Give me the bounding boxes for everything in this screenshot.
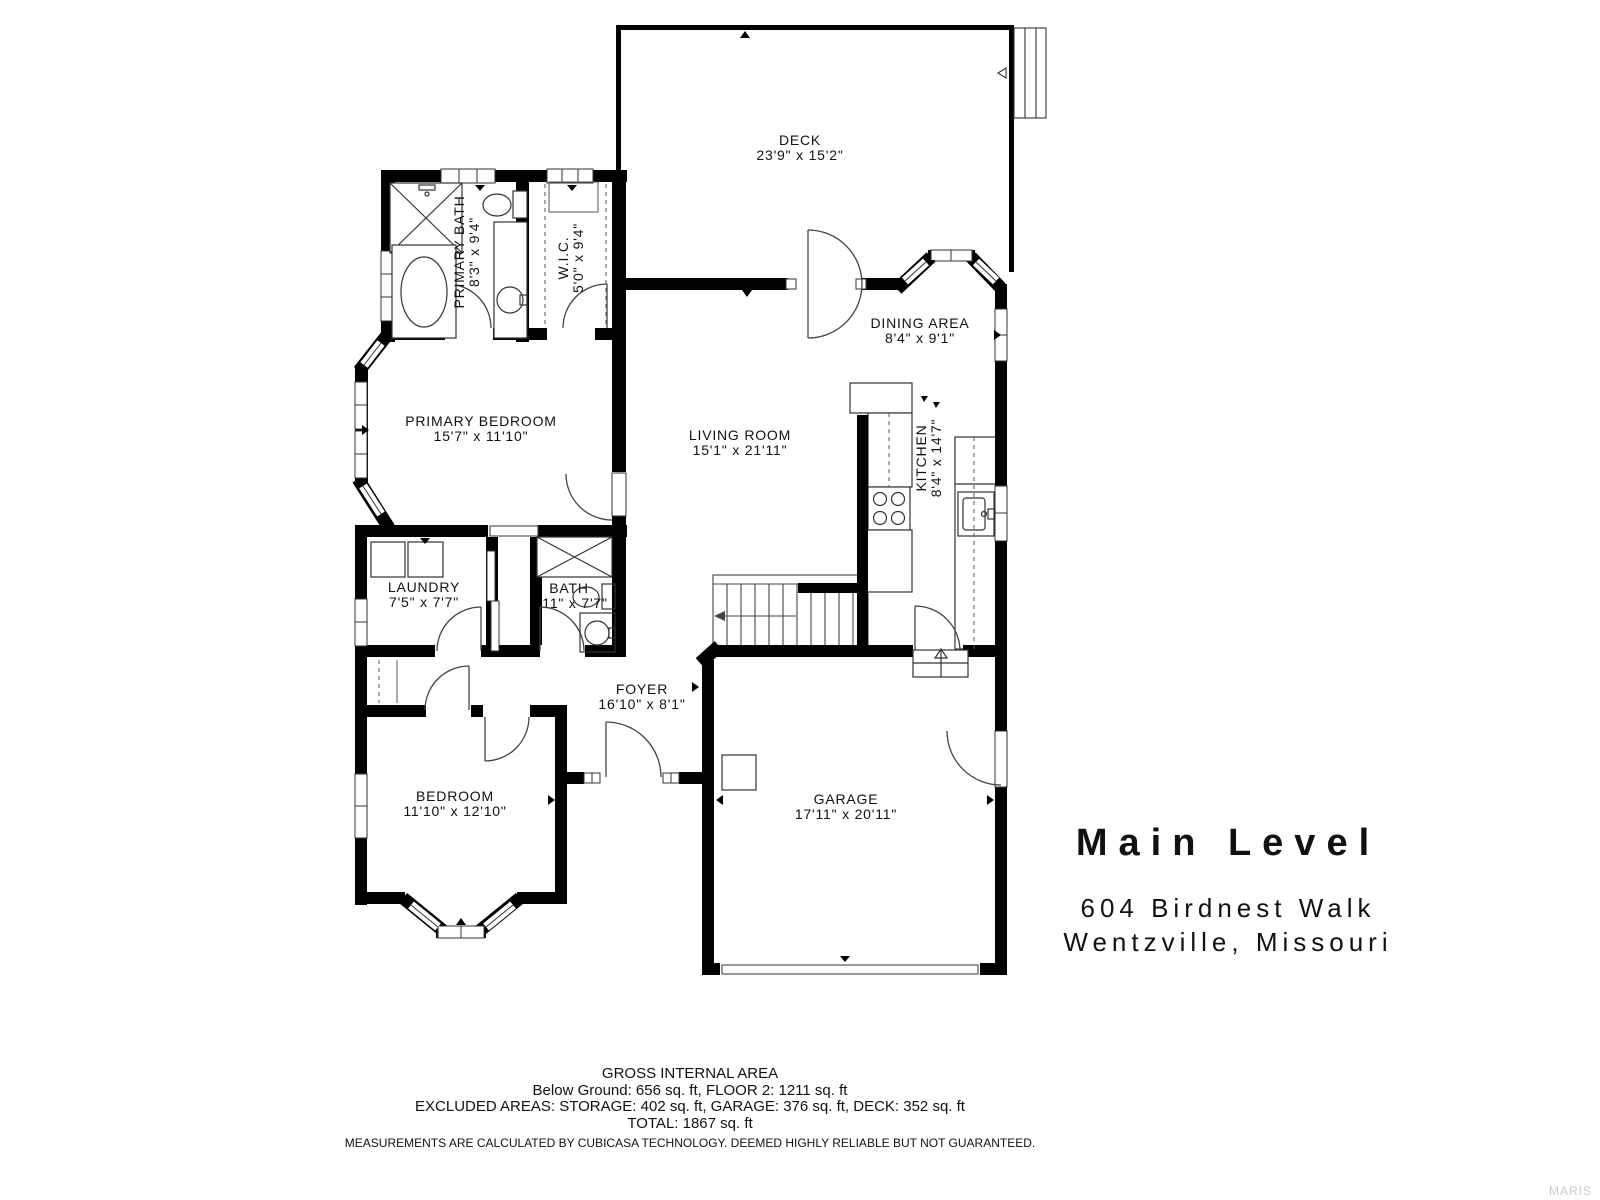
room-label-dining-area: DINING AREA 8'4" x 9'1": [870, 316, 969, 346]
excluded-areas-line: EXCLUDED AREAS: STORAGE: 402 sq. ft, GAR…: [345, 1099, 1035, 1116]
room-label-wic: W.I.C. 5'0" x 9'4": [556, 223, 586, 293]
room-dims: 16'10" x 8'1": [598, 697, 685, 712]
room-dims: 8'3" x 9'4": [467, 195, 482, 308]
room-dims: 15'1" x 21'11": [689, 443, 791, 458]
room-name: PRIMARY BATH: [452, 195, 467, 308]
room-name: W.I.C.: [556, 223, 571, 293]
room-name: BATH: [530, 581, 608, 596]
room-dims: 8'4" x 9'1": [870, 331, 969, 346]
room-labels: DECK 23'9" x 15'2" PRIMARY BATH 8'3" x 9…: [0, 0, 1600, 1200]
room-dims: 17'11" x 20'11": [795, 807, 897, 822]
area-breakdown-line: Below Ground: 656 sq. ft, FLOOR 2: 1211 …: [345, 1083, 1035, 1100]
floor-plan-page: DECK 23'9" x 15'2" PRIMARY BATH 8'3" x 9…: [0, 0, 1600, 1200]
room-name: DINING AREA: [870, 316, 969, 331]
room-dims: 23'9" x 15'2": [756, 148, 843, 163]
room-label-kitchen: KITCHEN 8'4" x 14'7": [914, 419, 944, 498]
room-label-living-room: LIVING ROOM 15'1" x 21'11": [689, 428, 791, 458]
room-label-garage: GARAGE 17'11" x 20'11": [795, 792, 897, 822]
room-dims: 7'5" x 7'7": [388, 595, 460, 610]
area-summary: GROSS INTERNAL AREA Below Ground: 656 sq…: [345, 1066, 1035, 1152]
floor-title: Main Level: [1063, 822, 1392, 865]
room-name: KITCHEN: [914, 419, 929, 498]
room-name: DECK: [756, 133, 843, 148]
room-label-bedroom: BEDROOM 11'10" x 12'10": [403, 789, 506, 819]
address-line1: 604 Birdnest Walk: [1063, 891, 1392, 925]
gross-internal-area-heading: GROSS INTERNAL AREA: [345, 1066, 1035, 1083]
address-line2: Wentzville, Missouri: [1063, 925, 1392, 959]
room-dims: 4'11" x 7'7": [530, 596, 608, 611]
room-name: PRIMARY BEDROOM: [405, 414, 557, 429]
room-label-bath: BATH 4'11" x 7'7": [530, 581, 608, 611]
room-dims: 5'0" x 9'4": [571, 223, 586, 293]
title-block: Main Level 604 Birdnest Walk Wentzville,…: [1063, 822, 1392, 959]
room-dims: 8'4" x 14'7": [929, 419, 944, 498]
total-area-line: TOTAL: 1867 sq. ft: [345, 1116, 1035, 1133]
room-label-foyer: FOYER 16'10" x 8'1": [598, 682, 685, 712]
room-name: LIVING ROOM: [689, 428, 791, 443]
room-dims: 11'10" x 12'10": [403, 804, 506, 819]
maris-watermark: MARIS: [1549, 1184, 1592, 1198]
room-name: FOYER: [598, 682, 685, 697]
room-name: GARAGE: [795, 792, 897, 807]
room-label-laundry: LAUNDRY 7'5" x 7'7": [388, 580, 460, 610]
room-label-primary-bath: PRIMARY BATH 8'3" x 9'4": [452, 195, 482, 308]
disclaimer-text: MEASUREMENTS ARE CALCULATED BY CUBICASA …: [345, 1135, 1035, 1152]
room-name: LAUNDRY: [388, 580, 460, 595]
room-label-deck: DECK 23'9" x 15'2": [756, 133, 843, 163]
room-dims: 15'7" x 11'10": [405, 429, 557, 444]
room-label-primary-bedroom: PRIMARY BEDROOM 15'7" x 11'10": [405, 414, 557, 444]
room-name: BEDROOM: [403, 789, 506, 804]
